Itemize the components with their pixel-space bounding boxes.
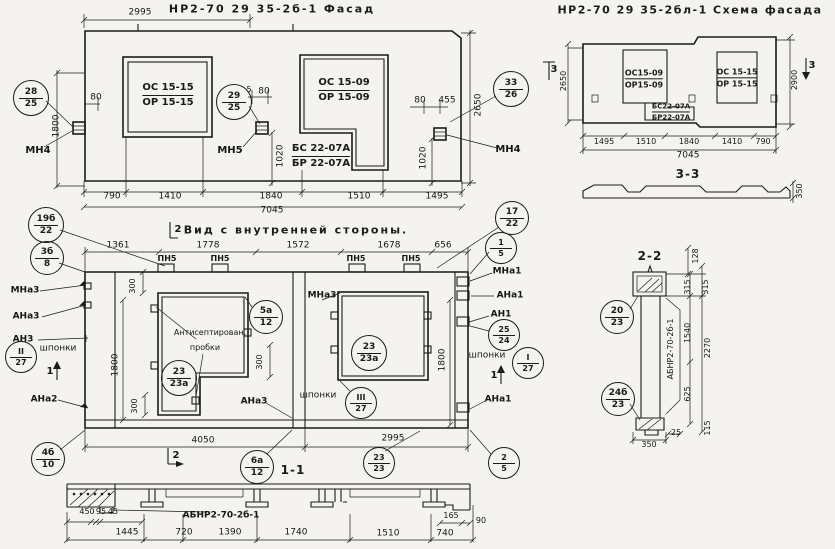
mark-bs22-07a-schema-bottom: БР22-07А [652,114,690,122]
plate-pn5-1: ПН5 [158,255,177,263]
dim-95: 95 [96,508,106,516]
dim-165: 165 [443,512,458,520]
anchor-ana1-right-bottom: АНа1 [485,396,512,405]
anchor-mna3-left: МНа3 [11,287,40,296]
dim-2650-facade: 2650 [475,94,484,117]
dim-790-facade: 790 [103,193,120,202]
fraction-divider [652,112,690,113]
callout-25-24: 2524 [488,319,520,351]
dim-90: 90 [476,517,486,525]
anchor-mna3-inner: МНа3 [308,292,337,301]
callout-II-27-bottom: 27 [15,359,26,367]
fraction-divider [716,78,757,79]
callout-19b-22-bottom: 22 [40,227,53,236]
dim-1445: 1445 [116,529,139,538]
dim-315-b: 315 [702,279,710,294]
callout-I-27: I27 [512,347,544,379]
note-antiseptic-2: пробки [190,344,220,352]
callout-III-27-top: III [357,394,366,402]
callout-23-23a-left-bottom: 23а [170,380,189,389]
note-antiseptic-1: Антисептирован. [174,329,246,337]
anchor-mn5: МН5 [217,146,242,156]
callout-2-5-top: 2 [501,454,507,462]
callout-29-25-top: 29 [228,92,241,101]
callout-2-5: 25 [488,447,520,479]
mark-os15-15-schema: ОС 15-15ОР 15-15 [716,67,757,88]
callout-33-26-bottom: 26 [505,91,518,100]
callout-III-27: III27 [345,387,377,419]
dim-450: 450 [79,508,94,516]
anchor-ana3-left: АНа3 [13,313,40,322]
dim-1410-schema: 1410 [722,138,742,146]
callout-23-23a-right-bottom: 23а [360,355,379,364]
mark-abnr-vertical: АБНР2-70-2б-1 [667,319,675,380]
dim-1020-facade-mid: 1020 [277,145,286,168]
dim-7045-schema: 7045 [677,152,700,161]
callout-6a-12: 6а12 [240,450,274,484]
mark-os15-15-schema-top: ОС 15-15 [716,67,757,76]
dim-1678: 1678 [378,242,401,251]
dim-4050: 4050 [192,437,215,446]
callout-17-22-bottom: 22 [506,220,519,229]
callout-20-23: 2023 [600,300,634,334]
dim-1361: 1361 [107,242,130,251]
dim-720: 720 [175,529,192,538]
callout-19b-22: 19б22 [28,207,64,243]
callout-17-22: 1722 [495,201,529,235]
dim-656: 656 [434,242,451,251]
dim-350-schema: 350 [796,183,804,198]
section-mark-3-right: 3 [809,61,816,71]
section-mark-3-left: 3 [551,65,558,75]
mark-os15-09-schema-bottom: ОР15-09 [625,81,663,90]
callout-28-25-top: 28 [25,88,38,97]
callout-2-5-bottom: 5 [501,465,507,473]
dim-1495-schema: 1495 [594,138,614,146]
callout-23-23a-right: 2323а [351,335,387,371]
dim-1510-facade: 1510 [348,193,371,202]
plate-pn5-4: ПН5 [402,255,421,263]
dim-1800-facade-left: 1800 [53,115,62,138]
anchor-ana3-inner: АНа3 [241,398,268,407]
callout-17-22-top: 17 [506,208,519,217]
callout-1-5-bottom: 5 [498,250,504,258]
callout-6a-12-top: 6а [251,457,263,466]
dim-115: 115 [704,420,712,435]
callout-6a-12-bottom: 12 [251,469,264,478]
dim-1840-facade: 1840 [260,193,283,202]
callout-III-27-bottom: 27 [355,405,366,413]
anchor-mna1-right: МНа1 [493,268,522,277]
mark-os15-09-facade: ОС 15-09ОР 15-09 [318,77,369,103]
dim-128: 128 [692,248,700,263]
callout-I-27-bottom: 27 [522,365,533,373]
dim-300-c: 300 [131,398,139,413]
dim-300-a: 300 [129,278,137,293]
dim-1510-schema: 1510 [636,138,656,146]
callout-23-23-top: 23 [373,454,384,462]
fraction-divider [292,156,350,157]
dim-2270: 2270 [704,338,712,358]
dim-1510-s11: 1510 [377,530,400,539]
callout-24b-23-top: 24б [609,389,628,398]
callout-25-24-bottom: 24 [498,337,509,345]
mark-bs22-07a-schema-top: БС22-07А [652,102,690,110]
callout-28-25-bottom: 25 [25,100,38,109]
callout-4b-10: 4б10 [31,442,65,476]
dim-790-schema: 790 [755,138,770,146]
callout-24b-23-bottom: 23 [612,401,625,410]
callout-33-26-top: 33 [505,79,518,88]
annotation-layer: 2995801800МН4580МН510208045510202650МН47… [0,0,835,549]
callout-23-23a-right-top: 23 [363,343,376,352]
mark-abnr-bottom: АБНР2-70-2б-1 [183,512,260,521]
dim-2995-internal: 2995 [382,435,405,444]
section-mark-2-top: 2 [175,225,182,235]
dim-2900-schema: 2900 [791,70,799,90]
callout-II-27-top: II [18,348,24,356]
dim-1778: 1778 [197,242,220,251]
callout-20-23-top: 20 [611,307,624,316]
callout-4b-10-top: 4б [42,449,55,458]
plate-pn5-3: ПН5 [347,255,366,263]
dim-1840-schema: 1840 [679,138,699,146]
dim-7045-facade: 7045 [261,207,284,216]
dim-300-b: 300 [256,354,264,369]
callout-1-5-top: 1 [498,239,504,247]
callout-5a-12: 5а12 [249,300,283,334]
dim-1020-facade-right: 1020 [420,147,429,170]
anchor-mn4-left: МН4 [25,146,50,156]
section-mark-1-right: 1 [491,371,498,381]
callout-19b-22-top: 19б [37,215,56,224]
callout-II-27: II27 [5,341,37,373]
label-shponki-inner: шпонки [300,392,337,401]
callout-1-5: 15 [485,232,517,264]
callout-3b-8: 3б8 [30,241,64,275]
callout-29-25-bottom: 25 [228,104,241,113]
section-mark-2-bottom: 2 [173,451,180,461]
anchor-mn4-right: МН4 [495,145,520,155]
callout-33-26: 3326 [493,71,529,107]
callout-3b-8-top: 3б [41,248,54,257]
label-shponki-right: шпонки [469,352,506,361]
callout-23-23a-left-top: 23 [173,368,186,377]
dim-2995-facade-top: 2995 [129,9,152,18]
dim-1572: 1572 [287,242,310,251]
mark-os15-15-schema-bottom: ОР 15-15 [716,80,757,89]
callout-23-23-bottom: 23 [373,465,384,473]
callout-28-25: 2825 [13,80,49,116]
mark-os15-09-schema: ОС15-09ОР15-09 [625,68,663,89]
fraction-divider [142,95,193,96]
callout-20-23-bottom: 23 [611,319,624,328]
callout-23-23: 2323 [363,447,395,479]
callout-23-23a-left: 2323а [161,360,197,396]
mark-os15-09-facade-top: ОС 15-09 [318,77,369,88]
section-mark-1-left: 1 [47,367,54,377]
dim-740: 740 [436,530,453,539]
dim-1800-internal-left: 1800 [112,354,121,377]
dim-45: 45 [108,508,118,516]
dim-80-facade-left: 80 [90,94,101,103]
callout-3b-8-bottom: 8 [44,260,50,269]
fraction-divider [625,79,663,80]
mark-bs22-07a-facade-bottom: БР 22-07А [292,158,350,169]
fraction-divider [318,90,369,91]
dim-2650-schema: 2650 [560,71,568,91]
dim-1410-facade: 1410 [159,193,182,202]
dim-1390: 1390 [219,529,242,538]
mark-bs22-07a-facade: БС 22-07АБР 22-07А [292,143,350,169]
blueprint-page: НР2-70 29 35-2б-1 Фасад НР2-70 29 35-2бл… [0,0,835,549]
callout-5a-12-bottom: 12 [260,319,273,328]
callout-5a-12-top: 5а [260,307,272,316]
callout-4b-10-bottom: 10 [42,461,55,470]
dim-80-facade-right: 80 [414,97,425,106]
mark-bs22-07a-facade-top: БС 22-07А [292,143,350,154]
callout-I-27-top: I [527,354,530,362]
dim-80-facade-mid: 80 [258,88,269,97]
callout-29-25: 2925 [216,84,252,120]
mark-bs22-07a-schema: БС22-07АБР22-07А [652,102,690,121]
callout-25-24-top: 25 [498,326,509,334]
dim-1540: 1540 [684,323,692,343]
dim-1800-internal-right: 1800 [439,349,448,372]
mark-os15-15-facade-bottom: ОР 15-15 [142,97,193,108]
mark-os15-15-facade: ОС 15-15ОР 15-15 [142,82,193,108]
dim-1740: 1740 [285,529,308,538]
plate-pn5-2: ПН5 [211,255,230,263]
mark-os15-09-schema-top: ОС15-09 [625,68,663,77]
dim-315-a: 315 [684,279,692,294]
mark-os15-09-facade-bottom: ОР 15-09 [318,92,369,103]
anchor-ana2-left: АНа2 [31,396,58,405]
anchor-ana1-right: АНа1 [497,292,524,301]
dim-455-facade-right: 455 [438,97,455,106]
dim-1495-facade: 1495 [426,193,449,202]
dim-625: 625 [684,386,692,401]
callout-24b-23: 24б23 [601,382,635,416]
dim-350-s22: 350 [641,441,656,449]
mark-os15-15-facade-top: ОС 15-15 [142,82,193,93]
dim-25: 25 [671,429,681,437]
label-shponki-left: шпонки [40,345,77,354]
